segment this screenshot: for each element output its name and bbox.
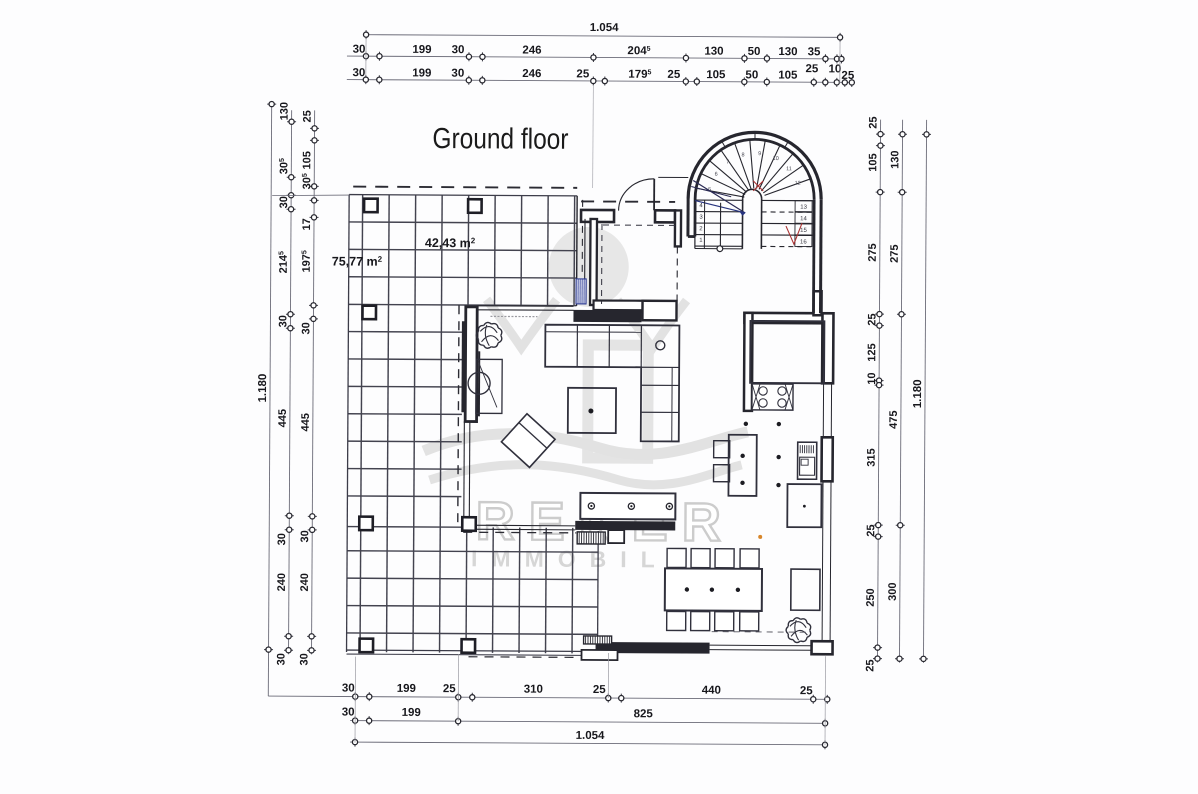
svg-text:Ground floor: Ground floor — [432, 123, 568, 156]
svg-text:1.054: 1.054 — [590, 22, 619, 34]
svg-text:30: 30 — [342, 707, 355, 719]
svg-text:17: 17 — [301, 218, 313, 230]
svg-text:8: 8 — [741, 152, 744, 158]
svg-text:275: 275 — [867, 243, 879, 261]
svg-text:825: 825 — [634, 708, 654, 720]
svg-text:445: 445 — [277, 409, 289, 427]
svg-text:240: 240 — [276, 573, 288, 591]
svg-text:42,43 m2: 42,43 m2 — [425, 236, 476, 250]
svg-text:30: 30 — [298, 653, 310, 665]
svg-text:1.180: 1.180 — [257, 374, 269, 403]
svg-text:199: 199 — [412, 44, 431, 56]
svg-text:6: 6 — [715, 172, 718, 178]
svg-text:15: 15 — [800, 228, 807, 234]
svg-text:315: 315 — [866, 448, 878, 466]
svg-text:310: 310 — [524, 684, 543, 696]
svg-text:16: 16 — [800, 239, 807, 245]
svg-text:105: 105 — [778, 70, 798, 82]
svg-text:13: 13 — [800, 205, 807, 211]
svg-text:30: 30 — [452, 44, 465, 56]
svg-text:246: 246 — [522, 45, 541, 57]
svg-text:10: 10 — [773, 156, 779, 162]
svg-text:105: 105 — [301, 151, 313, 169]
svg-text:1.180: 1.180 — [912, 379, 924, 408]
svg-text:240: 240 — [299, 573, 311, 591]
svg-text:130: 130 — [889, 150, 901, 168]
svg-text:246: 246 — [522, 68, 541, 80]
svg-text:9: 9 — [758, 151, 761, 157]
svg-text:30: 30 — [300, 322, 312, 334]
svg-text:25: 25 — [805, 63, 818, 75]
svg-text:445: 445 — [300, 413, 312, 431]
svg-text:199: 199 — [402, 707, 421, 719]
svg-text:30: 30 — [342, 683, 355, 695]
svg-text:30: 30 — [277, 315, 289, 327]
svg-text:50: 50 — [748, 46, 761, 58]
svg-text:250: 250 — [865, 588, 877, 606]
svg-text:25: 25 — [593, 684, 606, 696]
svg-text:11: 11 — [786, 166, 792, 172]
svg-text:300: 300 — [887, 582, 899, 600]
svg-text:25: 25 — [865, 524, 877, 536]
svg-text:105: 105 — [867, 153, 879, 171]
svg-text:30: 30 — [353, 44, 366, 56]
svg-text:25: 25 — [866, 313, 878, 325]
svg-text:130: 130 — [279, 102, 291, 120]
svg-text:1.054: 1.054 — [576, 730, 605, 742]
svg-text:130: 130 — [778, 46, 797, 58]
svg-text:25: 25 — [841, 70, 854, 82]
svg-text:7: 7 — [726, 160, 729, 166]
svg-text:25: 25 — [868, 116, 880, 128]
svg-text:30: 30 — [299, 530, 311, 542]
svg-text:25: 25 — [667, 69, 680, 81]
svg-text:105: 105 — [706, 69, 726, 81]
svg-text:199: 199 — [412, 67, 431, 79]
svg-text:50: 50 — [745, 69, 758, 81]
svg-text:30: 30 — [352, 67, 365, 79]
svg-text:75,77 m2: 75,77 m2 — [332, 254, 383, 268]
svg-text:30: 30 — [276, 533, 288, 545]
svg-text:25: 25 — [864, 659, 876, 671]
svg-text:25: 25 — [443, 683, 456, 695]
svg-text:30: 30 — [278, 196, 290, 208]
svg-text:14: 14 — [800, 216, 807, 222]
svg-text:12: 12 — [795, 181, 801, 187]
svg-text:25: 25 — [576, 68, 589, 80]
svg-text:10: 10 — [828, 63, 841, 75]
svg-text:30: 30 — [275, 653, 287, 665]
svg-text:475: 475 — [888, 410, 900, 428]
svg-text:199: 199 — [397, 683, 416, 695]
svg-text:440: 440 — [702, 685, 721, 697]
svg-text:35: 35 — [808, 46, 821, 58]
svg-text:30: 30 — [451, 68, 464, 80]
svg-text:125: 125 — [866, 343, 878, 361]
svg-text:130: 130 — [704, 46, 723, 58]
svg-text:10: 10 — [866, 372, 878, 384]
svg-text:25: 25 — [302, 110, 314, 122]
svg-text:275: 275 — [889, 244, 901, 262]
svg-text:25: 25 — [800, 685, 813, 697]
